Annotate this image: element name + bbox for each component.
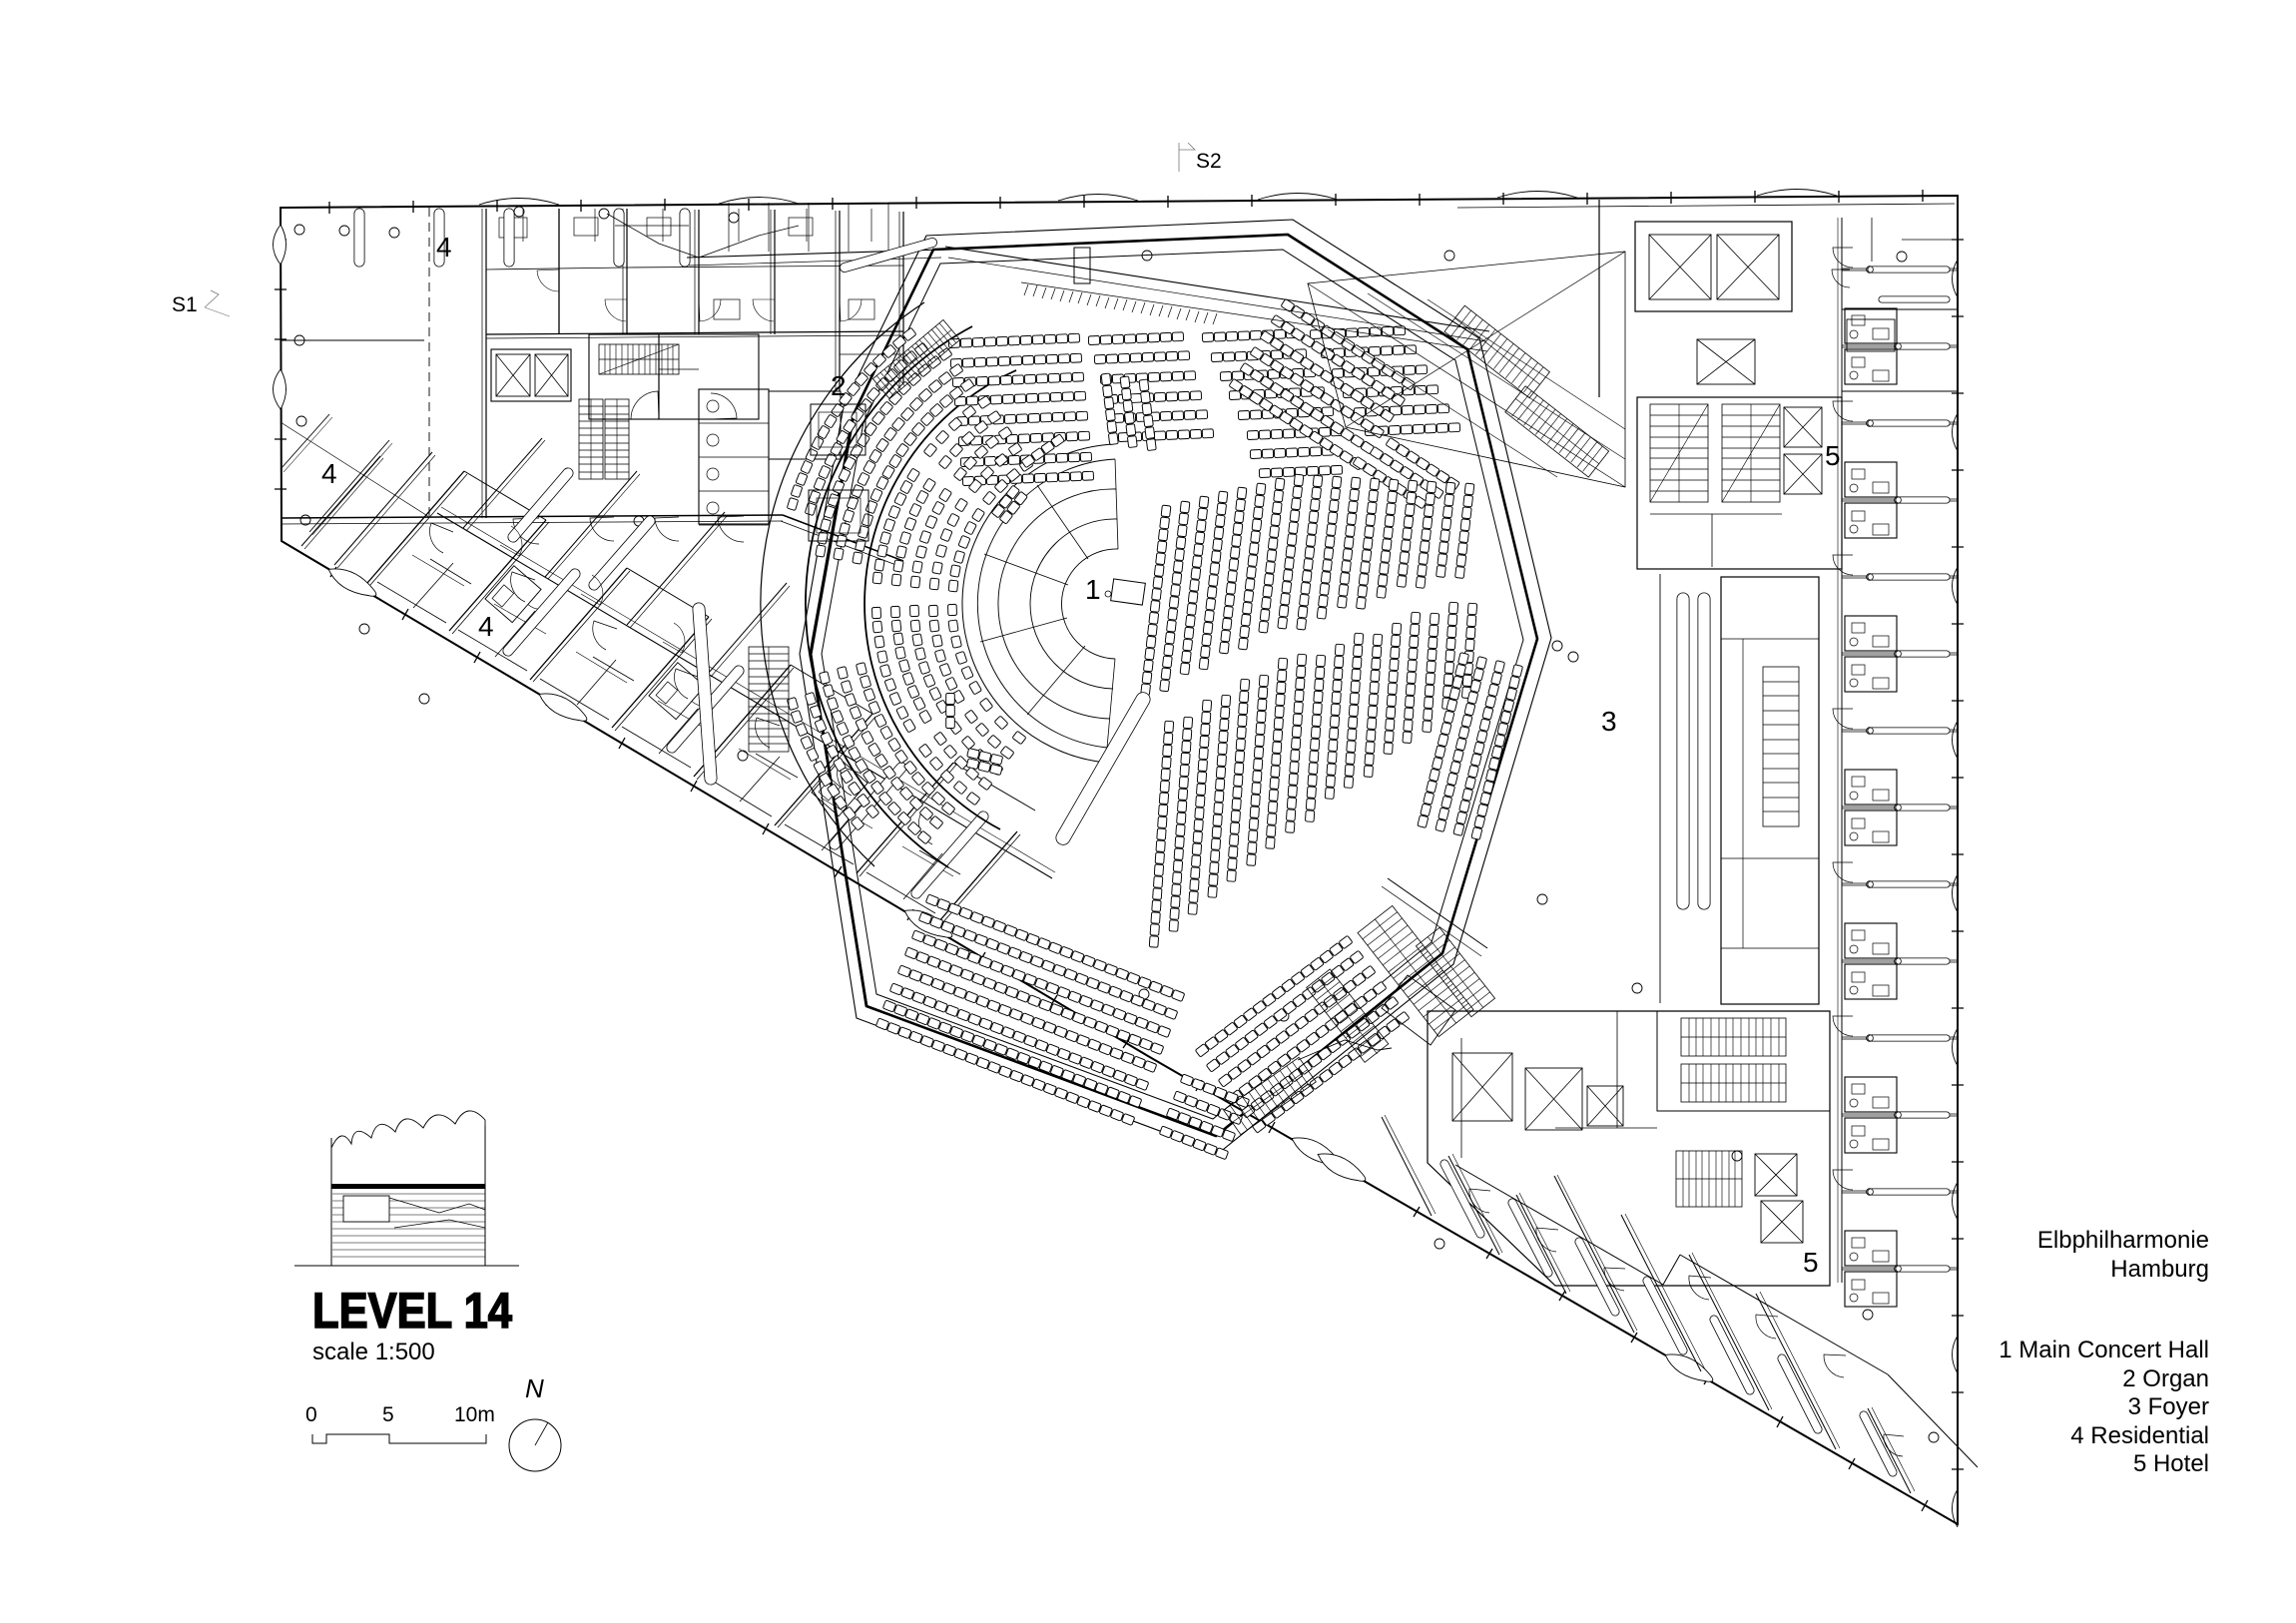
svg-text:2 Organ: 2 Organ <box>2122 1365 2209 1392</box>
svg-text:1: 1 <box>1085 574 1101 605</box>
svg-text:4 Residential: 4 Residential <box>2070 1422 2209 1449</box>
svg-text:5: 5 <box>382 1403 394 1426</box>
svg-text:5: 5 <box>1825 440 1841 471</box>
svg-text:N: N <box>525 1373 544 1403</box>
svg-text:5: 5 <box>1803 1247 1819 1278</box>
svg-text:4: 4 <box>321 458 337 489</box>
svg-text:3 Foyer: 3 Foyer <box>2128 1393 2209 1420</box>
svg-text:5 Hotel: 5 Hotel <box>2133 1450 2209 1477</box>
svg-text:2: 2 <box>831 370 847 401</box>
svg-text:1 Main Concert Hall: 1 Main Concert Hall <box>1999 1337 2209 1363</box>
svg-text:4: 4 <box>436 232 452 263</box>
svg-text:10m: 10m <box>454 1403 495 1426</box>
svg-text:3: 3 <box>1601 706 1617 737</box>
svg-text:0: 0 <box>305 1403 317 1426</box>
svg-text:Hamburg: Hamburg <box>2110 1256 2209 1283</box>
svg-text:S1: S1 <box>172 293 198 316</box>
svg-text:S2: S2 <box>1196 150 1222 173</box>
svg-text:LEVEL 14: LEVEL 14 <box>312 1283 512 1339</box>
svg-text:Elbphilharmonie: Elbphilharmonie <box>2037 1227 2209 1254</box>
svg-text:4: 4 <box>478 611 494 642</box>
svg-text:scale 1:500: scale 1:500 <box>312 1339 435 1365</box>
